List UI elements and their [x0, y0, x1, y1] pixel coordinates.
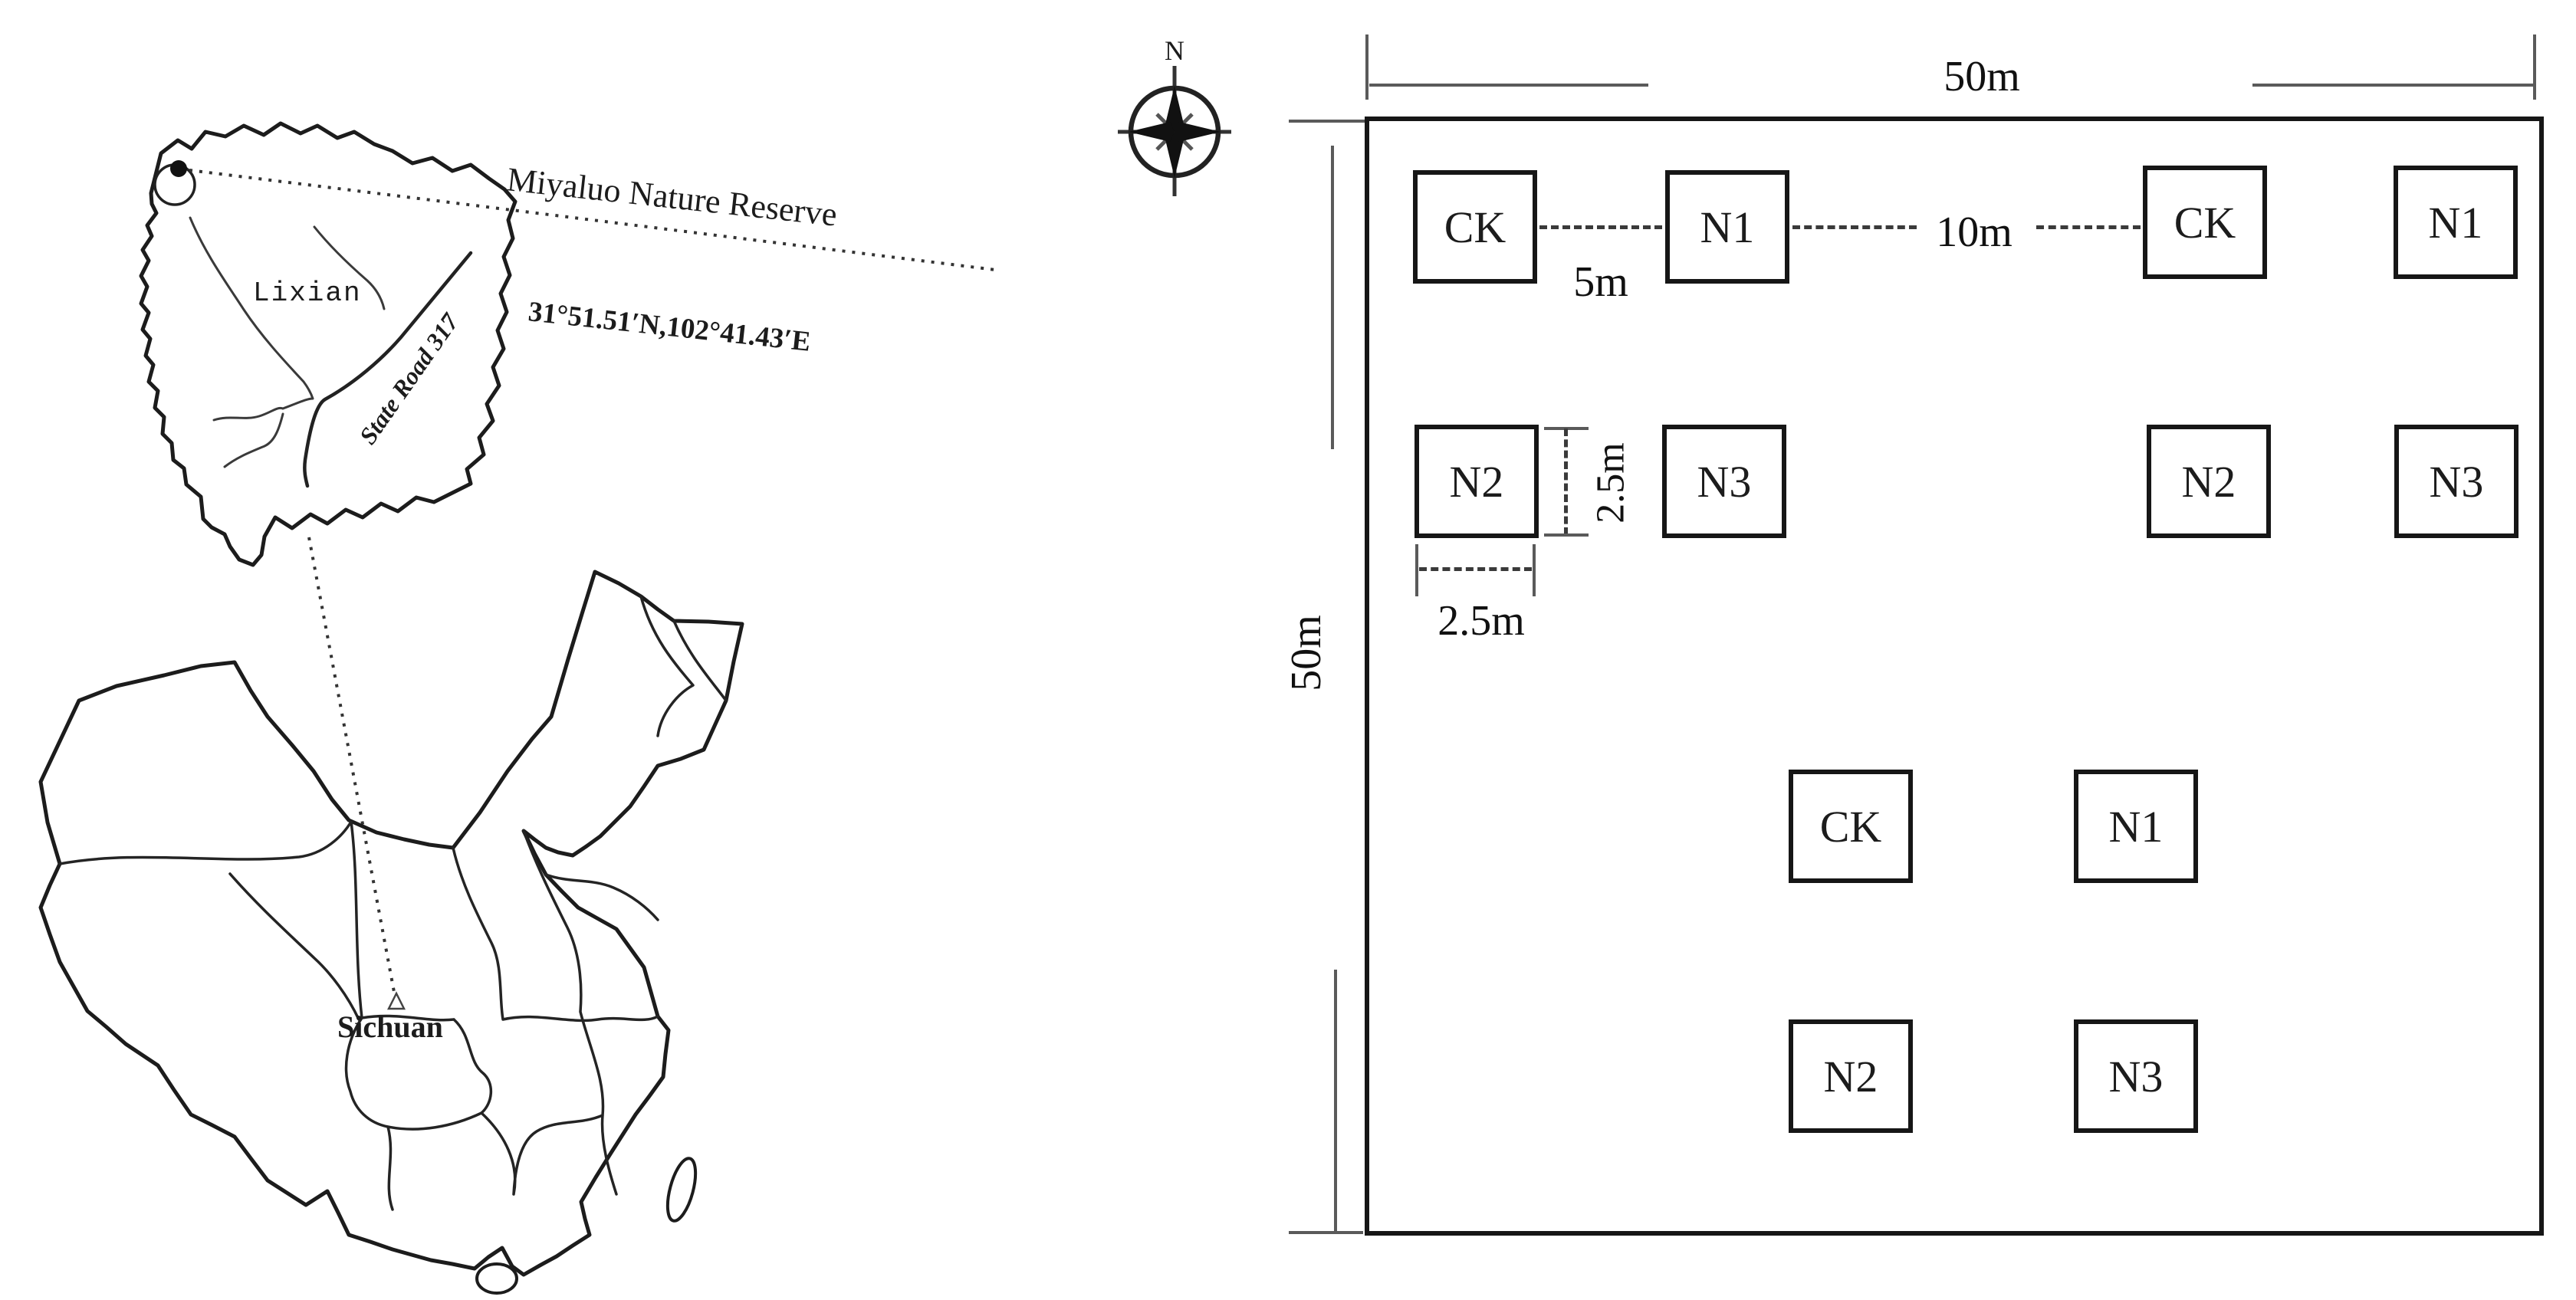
left-dimension-bottom-tick: [1289, 1231, 1363, 1234]
plot-label: N2: [1824, 1051, 1878, 1102]
plot-box: N3: [1662, 425, 1786, 538]
plot-box: N2: [1789, 1019, 1913, 1133]
plot-label: N3: [2430, 456, 2484, 507]
plot-width-dash: [1419, 567, 1532, 571]
plot-label: CK: [1444, 202, 1506, 253]
plot-width-right-tick: [1533, 544, 1536, 596]
plot-box: N2: [1414, 425, 1539, 538]
plot-height-label: 2.5m: [1589, 442, 1634, 523]
plot-box: N3: [2074, 1019, 2198, 1133]
plot-label: N3: [2109, 1051, 2164, 1102]
reserve-coordinates-label: 31°51.51′N,102°41.43′E: [527, 296, 812, 358]
plot-box: N1: [2074, 770, 2198, 883]
plot-width-left-tick: [1415, 544, 1418, 596]
plot-label: CK: [1820, 801, 1882, 852]
plot-box: CK: [2143, 166, 2267, 279]
taiwan-island: [662, 1156, 701, 1224]
plot-box: CK: [1413, 170, 1537, 284]
top-dimension-right-tick: [2533, 34, 2536, 100]
plot-height-dash: [1564, 428, 1568, 535]
plot-label: CK: [2174, 197, 2236, 248]
lixian-county-boundary: [141, 123, 515, 565]
compass-rose: N: [1118, 35, 1231, 196]
plot-label: N1: [1700, 202, 1755, 253]
field-width-label: 50m: [1944, 52, 2020, 101]
plot-height-bottom-tick: [1544, 533, 1589, 537]
field-boundary-square: [1365, 117, 2544, 1236]
top-dimension-right-segment: [2252, 84, 2535, 87]
plot-gap-label: 5m: [1573, 258, 1628, 307]
lixian-to-sichuan-dotted-line: [309, 537, 394, 992]
gap-dash-10m-to-ck: [2036, 225, 2141, 229]
lixian-rivers: [190, 218, 384, 467]
hainan-island: [477, 1264, 517, 1293]
reserve-name-label: Miyaluo Nature Reserve: [505, 160, 839, 233]
plot-label: N1: [2429, 197, 2483, 248]
gap-dash-n1-to-10m: [1792, 225, 1917, 229]
top-dimension-left-tick: [1365, 34, 1368, 100]
plot-label: N3: [1697, 456, 1752, 507]
province-name-label: Sichuan: [337, 1009, 443, 1044]
plot-box: CK: [1789, 770, 1913, 883]
gap-dash-ck-n1: [1539, 225, 1662, 229]
reserve-location-dot: [170, 160, 187, 177]
sichuan-site-triangle: [389, 993, 404, 1009]
left-dimension-lower-segment: [1334, 970, 1337, 1231]
plot-label: N2: [2182, 456, 2236, 507]
left-dimension-upper-segment: [1331, 146, 1334, 449]
compass-west-point: [1129, 122, 1175, 142]
plot-label: N1: [2109, 801, 2164, 852]
plot-box: N2: [2147, 425, 2271, 538]
china-province-borders: [60, 596, 726, 1210]
plot-box: N1: [1665, 170, 1789, 284]
left-dimension-top-tick: [1289, 120, 1365, 123]
field-height-label: 50m: [1282, 615, 1331, 691]
plot-box: N3: [2394, 425, 2518, 538]
top-dimension-left-segment: [1369, 84, 1648, 87]
compass-north-label: N: [1165, 35, 1184, 66]
plot-box: N1: [2394, 166, 2518, 279]
plot-label: N2: [1450, 456, 1504, 507]
study-site-figure: N Miyaluo Nature Reserve 31°51.51′N,102°…: [0, 0, 2576, 1300]
compass-east-point: [1175, 122, 1221, 142]
county-name-label: Lixian: [253, 277, 362, 309]
block-gap-label: 10m: [1936, 208, 2013, 257]
plot-width-label: 2.5m: [1437, 596, 1525, 645]
china-outline: [41, 572, 742, 1275]
